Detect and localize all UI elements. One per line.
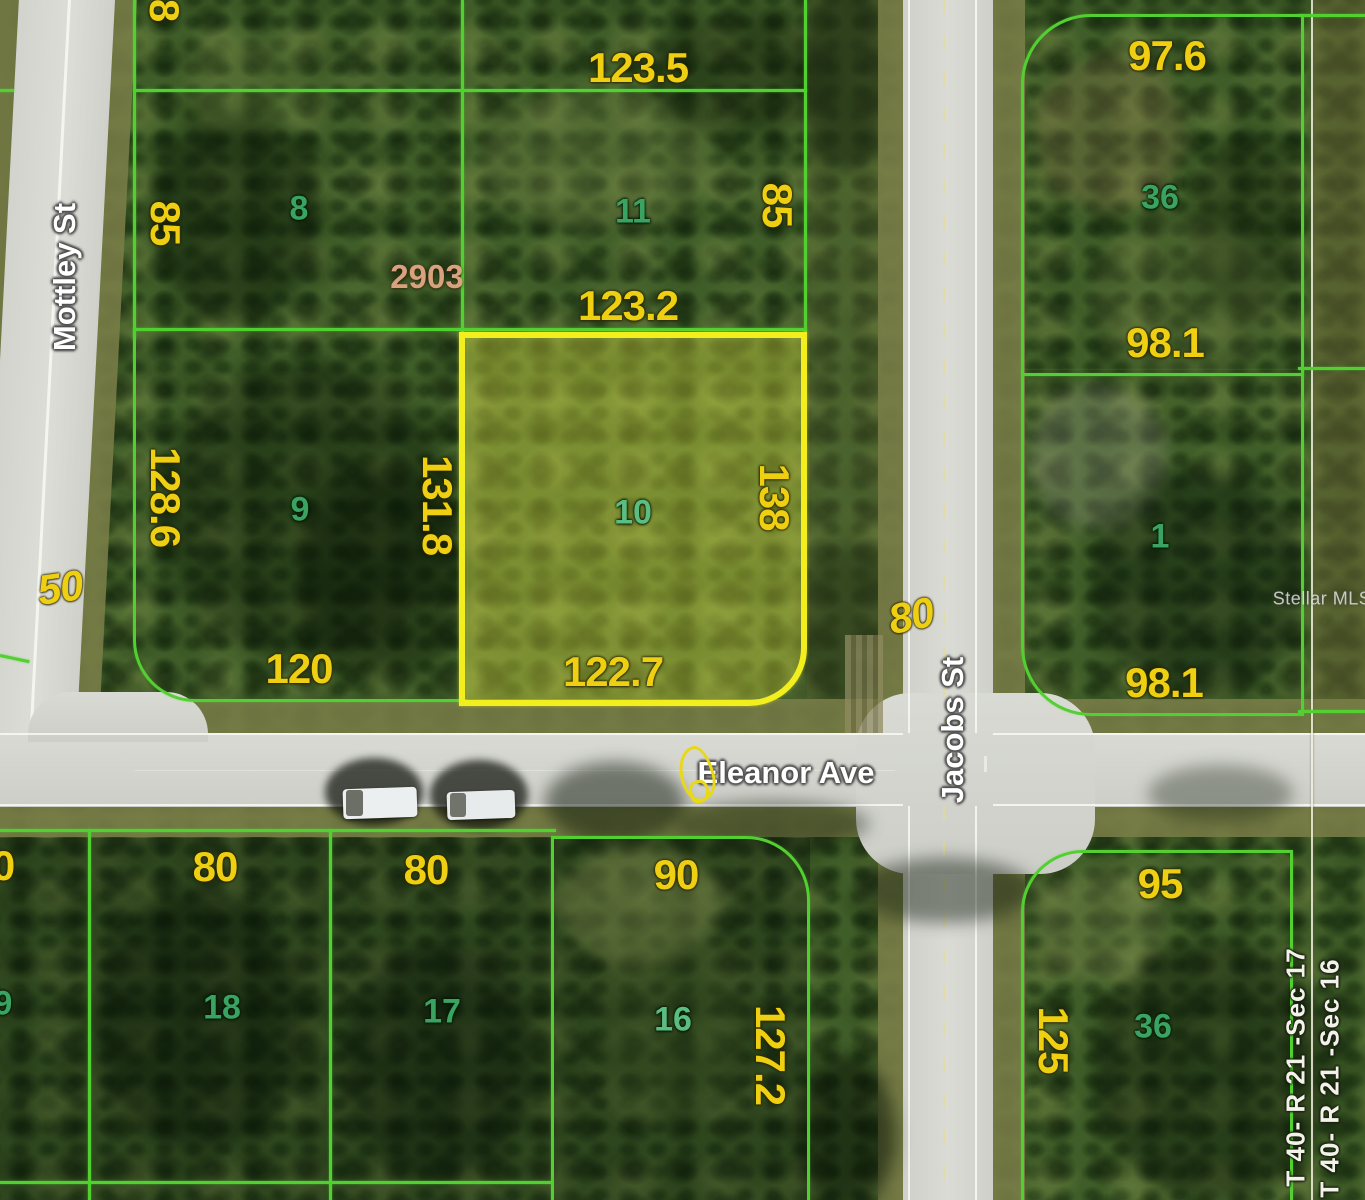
parcel-boundary-line	[133, 89, 807, 92]
parcel-number: 9	[0, 985, 12, 1024]
parcel-number: 16	[654, 1001, 692, 1040]
address-label: 2903	[390, 258, 463, 296]
dimension-label: 128.6	[141, 447, 189, 547]
section-label-16: T 40- R 21 -Sec 16	[1315, 958, 1346, 1197]
truck-cab	[450, 793, 466, 817]
jacobs-edge-line	[975, 0, 977, 733]
dimension-label: 85	[141, 201, 189, 246]
satellite-parcel-map: 8 123.5 85 8 2903 11 85 123.2 128.6 9 13…	[0, 0, 1365, 1200]
dirt-trail	[845, 635, 883, 733]
vegetation-shade	[345, 940, 535, 1180]
parcel-boundary-line	[804, 0, 807, 334]
parcel-boundary-line	[133, 0, 136, 340]
junction-marking	[984, 756, 987, 772]
eleanor-edge-line	[0, 733, 903, 735]
vegetation-shade	[95, 890, 305, 1150]
dimension-label: 125	[1029, 1006, 1077, 1073]
parcel-number: 36	[1134, 1008, 1172, 1047]
parcel-boundary-line	[1298, 14, 1365, 17]
watermark: Stellar MLS	[1273, 589, 1365, 610]
parcel-number: 1	[1151, 518, 1170, 557]
road-dimension-label: 50	[35, 561, 86, 615]
parcel-number: 9	[291, 491, 310, 530]
dimension-label: 85	[753, 183, 801, 228]
parcel-boundary-line	[88, 829, 91, 1200]
jacobs-center-dashes	[943, 0, 945, 733]
parcel-boundary-line	[329, 829, 332, 1200]
dimension-label: 122.7	[563, 648, 663, 696]
road-dimension-label: 80	[884, 588, 938, 644]
dimension-label: 97.6	[1128, 32, 1206, 80]
parcel-boundary-line	[0, 89, 14, 92]
eleanor-edge-line	[993, 733, 1365, 735]
dimension-label: 0	[0, 842, 14, 890]
dimension-label: 127.2	[746, 1005, 794, 1105]
parcel-number: 8	[290, 190, 309, 229]
dimension-label: 123.2	[578, 282, 678, 330]
parcel-number: 11	[615, 193, 651, 232]
parcel-boundary-line	[0, 1181, 553, 1184]
parcel-boundary-line	[1298, 710, 1365, 713]
dimension-label: 98.1	[1125, 659, 1203, 707]
tree-shadow	[1148, 765, 1293, 823]
parcel-boundary-line	[1298, 367, 1365, 370]
tree-shadow	[855, 858, 1035, 923]
truck-cab	[346, 790, 363, 816]
street-label-mottley: Mottley St	[47, 203, 83, 351]
street-label-jacobs: Jacobs St	[935, 657, 971, 803]
parcel-boundary-line	[0, 829, 556, 832]
dimension-label: 95	[1138, 860, 1183, 908]
dimension-label: 80	[404, 846, 449, 894]
dimension-label: 131.8	[413, 455, 461, 555]
dimension-label: 80	[193, 843, 238, 891]
dimension-label: 138	[750, 463, 798, 530]
parcel-number: 17	[423, 993, 461, 1032]
section-label-17: T 40- R 21 -Sec 17	[1281, 947, 1312, 1186]
vegetation-shade	[185, 35, 315, 130]
parcel-number: 18	[203, 989, 241, 1028]
parcel-number: 36	[1141, 179, 1179, 218]
street-label-eleanor: Eleanor Ave	[698, 755, 875, 791]
dimension-label: 123.5	[588, 44, 688, 92]
dimension-label: 120	[265, 645, 332, 693]
dimension-label: 98.1	[1126, 319, 1204, 367]
dimension-label: 8	[140, 0, 188, 21]
parcel-number: 10	[614, 494, 652, 533]
tree-shadow	[545, 762, 685, 842]
dimension-label: 90	[654, 851, 699, 899]
